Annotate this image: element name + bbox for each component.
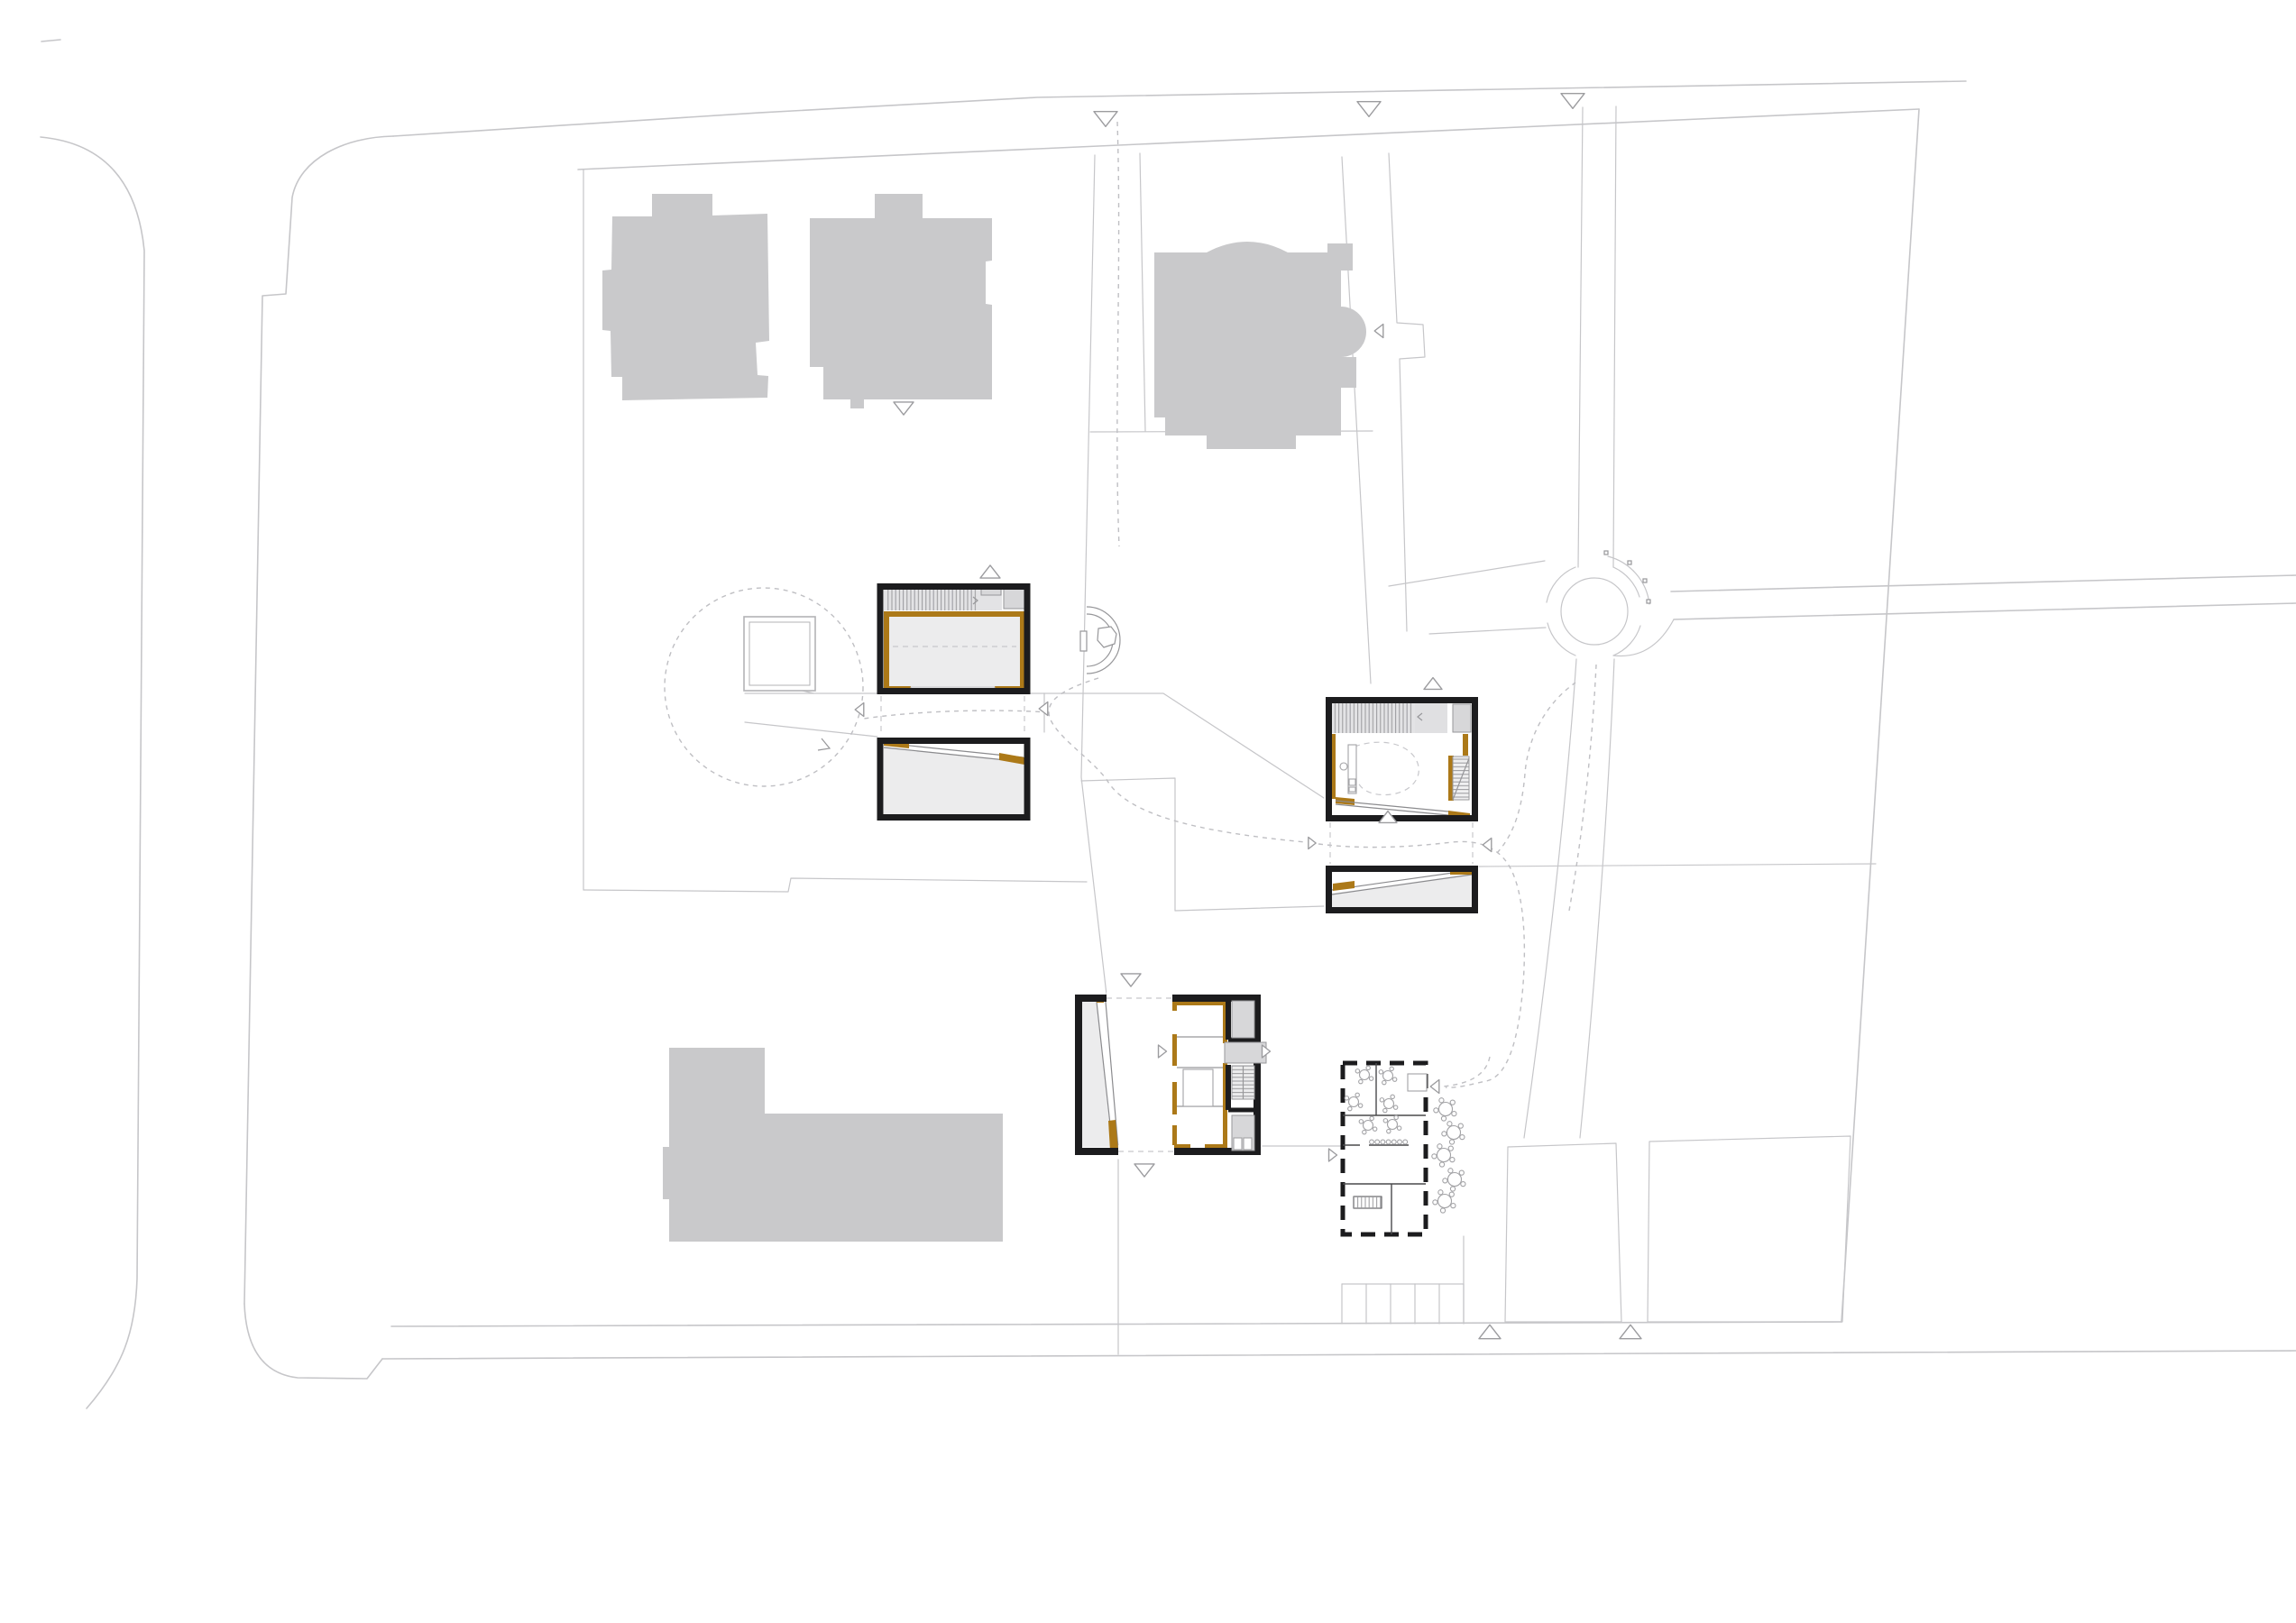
garden-plot-2: [1648, 1136, 1851, 1322]
terrace-table: [1432, 1144, 1455, 1167]
exedra-bench: [1080, 607, 1120, 674]
site-plan-page: [0, 0, 2296, 1623]
counter-stool: [1381, 1140, 1385, 1144]
roundabout-west-road-a: [1389, 561, 1545, 586]
entry-marker-left: [1483, 839, 1492, 852]
terrace-table: [1443, 1169, 1465, 1191]
dashed-pedestrian-paths: [665, 122, 1596, 1087]
lane-east-left-edge: [1342, 157, 1371, 683]
terrace-table: [1442, 1122, 1465, 1144]
existing-villa-north-west: [602, 194, 769, 400]
cafe-building: [1343, 1063, 1465, 1234]
site-boundary-west: [244, 136, 393, 1304]
mid-plot-line-b: [1479, 864, 1876, 867]
plots-top-line: [578, 109, 1919, 170]
path-north-lane-dashed: [1117, 122, 1119, 546]
entry-marker-up: [980, 565, 1000, 578]
roundabout-island: [1561, 578, 1628, 645]
roundabout-west-road-b: [1429, 628, 1546, 634]
counter-stool: [1375, 1140, 1380, 1144]
cafe-entry-porch: [1408, 1074, 1427, 1091]
site-plan-drawing: [0, 0, 2296, 1623]
path-band-top-b: [1030, 693, 1324, 798]
roundabout-north-lane-right: [1613, 106, 1616, 567]
counter-stool: [1403, 1140, 1408, 1144]
pavilion-east: [1326, 697, 1478, 913]
loop-arrowhead: [818, 738, 830, 750]
lane-west-right-edge: [1140, 153, 1145, 431]
plot-line-west-bottom: [583, 878, 1087, 892]
roundabout-north-lane-left: [1578, 107, 1583, 567]
mid-plot-line-a: [1081, 778, 1324, 911]
bottom-sidewalk-line: [391, 1322, 1841, 1326]
entry-marker-up: [1424, 678, 1442, 690]
east-road-bottom-edge: [1674, 603, 2296, 619]
existing-manor-villa: [1154, 242, 1366, 449]
site-boundary-east: [1841, 109, 1919, 1322]
road-stub: [41, 40, 60, 41]
roundabout-south-lane-left: [1524, 659, 1576, 1138]
entry-marker-down: [1134, 1164, 1154, 1177]
cafe-terrace-tables: [1432, 1098, 1465, 1213]
parking-stalls: [1342, 1284, 1464, 1324]
pavilion-north: [877, 583, 1030, 821]
entry-marker-down: [1094, 112, 1117, 127]
core-room-top: [1232, 1001, 1254, 1038]
left-road-edge: [41, 137, 144, 1408]
terrace-table: [1433, 1190, 1456, 1213]
entry-marker-down: [894, 402, 914, 415]
lane-west-left-edge: [1081, 155, 1107, 995]
entry-marker-right: [1309, 838, 1316, 849]
bottom-road-edge: [382, 1351, 2296, 1359]
site-and-road-lines: [41, 40, 2296, 1408]
pavilion-south: [1075, 992, 1266, 1157]
counter-stool: [1386, 1140, 1391, 1144]
entry-marker-up: [1479, 1325, 1501, 1338]
garden-plot-1: [1505, 1143, 1621, 1322]
counter-stool: [1391, 1140, 1396, 1144]
lane-east-right-edge: [1389, 153, 1425, 631]
site-boundary-south-curve: [244, 1304, 382, 1379]
site-boundary-north: [393, 81, 1966, 136]
roundabout: [1547, 551, 1650, 656]
path-through-gap-west: [864, 711, 1049, 719]
entry-marker-right: [1329, 1149, 1337, 1161]
path-cafe-entry: [1443, 1057, 1490, 1087]
entry-marker-up: [1620, 1325, 1641, 1338]
roundabout-south-lane-right: [1580, 659, 1614, 1138]
cafe-counter-stools: [1370, 1140, 1408, 1144]
entry-marker-down: [1121, 974, 1141, 986]
terrace-table: [1434, 1098, 1456, 1121]
entry-marker-down: [1561, 94, 1584, 109]
cafe-stair: [1354, 1197, 1382, 1208]
path-branch-to-roundabout: [1497, 683, 1575, 853]
existing-villa-north-mid: [810, 194, 992, 408]
entry-marker-left: [1039, 702, 1048, 716]
counter-stool: [1370, 1140, 1374, 1144]
path-band-bottom: [745, 722, 877, 737]
garden-pavilion-square: [744, 617, 815, 691]
entry-marker-down: [1357, 102, 1381, 117]
entry-marker-left: [1374, 325, 1383, 338]
counter-stool: [1398, 1140, 1402, 1144]
entry-marker-left: [1430, 1080, 1439, 1094]
east-road-top-edge: [1671, 575, 2296, 591]
core-landing: [1225, 1042, 1266, 1063]
existing-long-building: [663, 1048, 1003, 1242]
